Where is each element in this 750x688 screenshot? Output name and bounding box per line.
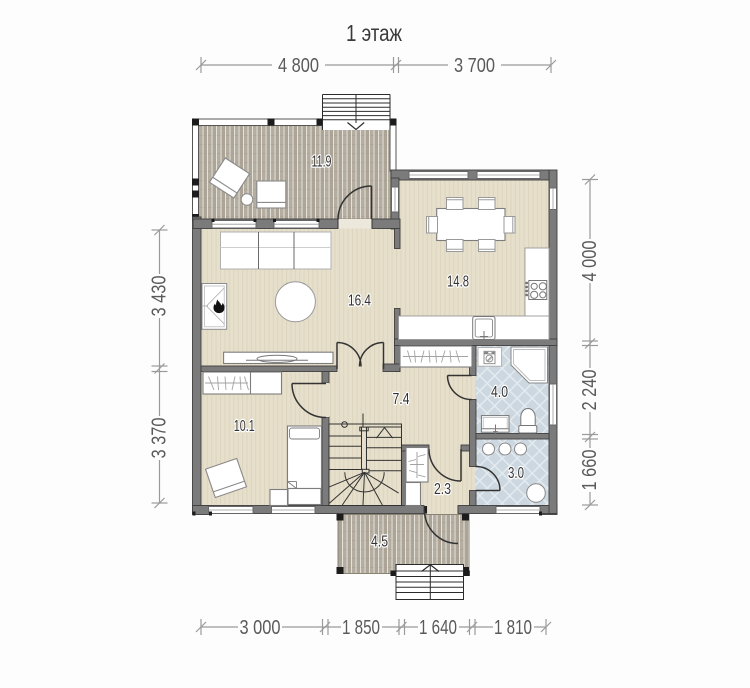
svg-text:4.0: 4.0 <box>491 384 508 401</box>
svg-text:1 640: 1 640 <box>419 617 457 639</box>
svg-text:2.3: 2.3 <box>434 481 451 498</box>
svg-text:4 000: 4 000 <box>579 241 601 282</box>
svg-text:14.8: 14.8 <box>447 274 469 291</box>
svg-text:3 430: 3 430 <box>149 276 171 317</box>
svg-text:10.1: 10.1 <box>234 418 255 435</box>
svg-text:3 370: 3 370 <box>149 418 171 459</box>
svg-text:11.9: 11.9 <box>312 154 332 171</box>
svg-text:4 800: 4 800 <box>278 55 319 77</box>
svg-text:3 700: 3 700 <box>454 55 495 77</box>
svg-text:7.4: 7.4 <box>393 391 410 408</box>
svg-text:16.4: 16.4 <box>348 293 371 310</box>
svg-text:1 850: 1 850 <box>342 617 380 639</box>
svg-text:3 000: 3 000 <box>240 617 281 639</box>
svg-text:1 810: 1 810 <box>494 617 532 639</box>
svg-text:2 240: 2 240 <box>579 370 601 411</box>
svg-text:1 этаж: 1 этаж <box>346 20 402 46</box>
svg-text:4.5: 4.5 <box>371 534 388 551</box>
svg-text:3.0: 3.0 <box>508 465 524 482</box>
svg-text:1 660: 1 660 <box>579 450 601 491</box>
